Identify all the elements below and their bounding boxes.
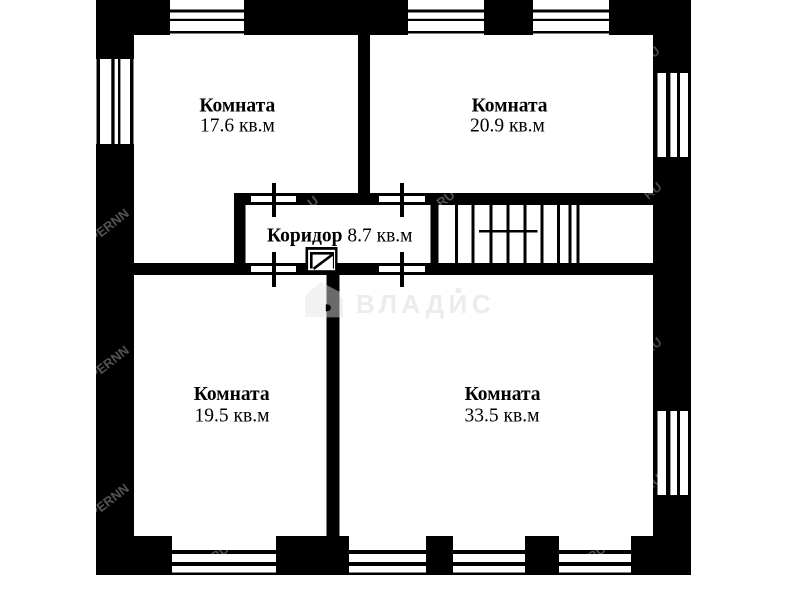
svg-text:Комната: Комната (199, 95, 275, 116)
svg-text:ВЛАДИС: ВЛАДИС (356, 289, 495, 319)
svg-text:Комната: Комната (472, 95, 548, 116)
svg-text:19.5 кв.м: 19.5 кв.м (195, 406, 270, 427)
svg-text:33.5 кв.м: 33.5 кв.м (465, 406, 540, 427)
svg-text:Комната: Комната (465, 384, 541, 405)
svg-text:17.6 кв.м: 17.6 кв.м (200, 116, 275, 137)
svg-text:Коридор 8.7 кв.м: Коридор 8.7 кв.м (267, 225, 413, 246)
svg-text:Комната: Комната (194, 384, 270, 405)
svg-text:20.9 кв.м: 20.9 кв.м (470, 116, 545, 137)
